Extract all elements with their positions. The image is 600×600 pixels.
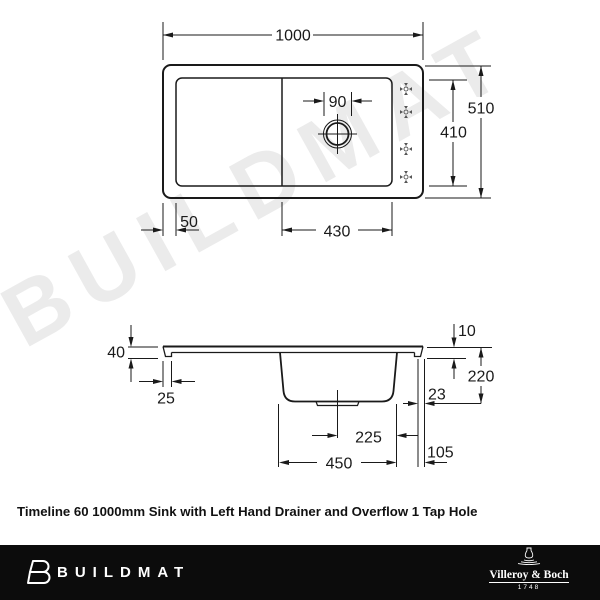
dim-40-label: 40 [107,345,125,362]
dim-10-label: 10 [458,323,476,340]
tap-hole-position-markers [400,83,412,183]
product-caption: Timeline 60 1000mm Sink with Left Hand D… [17,504,477,519]
spec-sheet: BUILDMAT [0,0,600,600]
buildmat-brand-name: BUILDMAT [57,564,190,581]
dim-left-edge: 25 [139,361,195,408]
dim-25-label: 25 [157,391,175,408]
dim-bowl-depth: 220 [464,348,499,404]
dim-105-label: 105 [427,445,454,462]
dim-430-label: 430 [324,224,351,241]
tap-hole [318,114,357,154]
bowl-profile [280,353,397,402]
dim-90-label: 90 [329,94,347,111]
dim-1000-label: 1000 [275,28,311,45]
sink-technical-drawing: 1000 510 410 [0,0,600,545]
dim-overall-width: 1000 [163,22,423,60]
dim-drain-offset: 225 [312,430,418,447]
rim-left-lip [163,347,172,357]
footer-bar: BUILDMAT Villeroy & Boch 1748 [0,545,600,600]
amphora-icon [514,547,544,565]
dim-410-label: 410 [440,125,467,142]
dim-220-label: 220 [468,369,495,386]
rim-right-lip [415,347,424,357]
villeroy-boch-name: Villeroy & Boch [489,569,568,583]
dim-450-label: 450 [326,456,353,473]
drainer-and-bowl-recess [176,78,392,186]
dim-inner-depth: 410 [429,80,469,186]
dim-225-label: 225 [355,430,382,447]
position-marker-icon [400,106,412,118]
position-marker-icon [400,83,412,95]
dim-23-label: 23 [428,387,446,404]
top-view: 1000 510 410 [141,22,498,241]
sink-outline-top-view [163,65,423,198]
dim-rim-height: 40 [107,325,158,382]
position-marker-icon [400,171,412,183]
dim-tap-hole: 90 [303,92,372,116]
buildmat-logo-icon [26,559,56,587]
dim-510-label: 510 [468,101,495,118]
villeroy-boch-logo: Villeroy & Boch 1748 [487,547,571,591]
dim-50-label: 50 [180,214,198,231]
side-view: 40 25 10 [107,323,498,473]
dim-bottom-row: 50 430 [141,202,392,241]
villeroy-boch-year: 1748 [487,584,571,591]
position-marker-icon [400,143,412,155]
